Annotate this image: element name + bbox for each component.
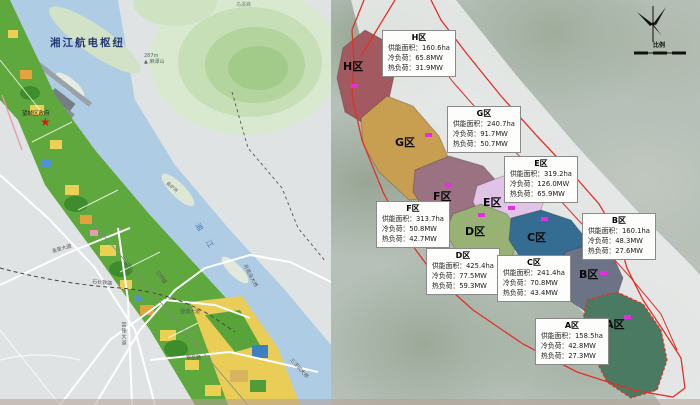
road-label-wangcheng: 望城大道 [180,310,200,316]
dual-map-figure: 湘江航电枢纽 287m ▲ 麻潭山 鸟溪峰 望城区政府 ★ 湘 江 香炉洲 金星… [0,0,700,405]
zone-label-G: G区 [395,134,415,150]
bottom-edge-strip [0,399,700,405]
peak-marker: 287m ▲ 麻潭山 [144,54,164,65]
callout-title: D区 [432,250,494,261]
north-arrow-icon [637,6,666,42]
callout-title: A区 [541,320,603,331]
callout-title: G区 [453,108,515,119]
road-label-yinxing: 银星路 [186,356,201,362]
callout-row-area: 供能面积：313.7ha [382,214,444,224]
district-callout-F: F区 供能面积：313.7ha 冷负荷：50.8MW 热负荷：42.7MW [376,201,450,248]
callout-row-cooling: 冷负荷：48.3MW [588,236,650,246]
callout-row-area: 供能面积：160.6ha [388,43,450,53]
callout-row-cooling: 冷负荷：70.8MW [503,278,565,288]
energy-station-marker-G [425,133,432,137]
callout-row-cooling: 冷负荷：91.7MW [453,129,515,139]
callout-row-area: 供能面积：240.7ha [453,119,515,129]
callout-row-cooling: 冷负荷：126.0MW [510,179,572,189]
callout-row-area: 供能面积：319.2ha [510,169,572,179]
energy-station-marker-F [445,183,452,187]
callout-row-area: 供能面积：158.5ha [541,331,603,341]
callout-row-cooling: 冷负荷：65.8MW [388,53,450,63]
peak-triangle-icon: ▲ [144,59,148,65]
hill-label: 鸟溪峰 [236,3,251,9]
energy-station-marker-D [478,213,485,217]
map-title: 湘江航电枢纽 [50,38,125,50]
callout-row-cooling: 冷负荷：42.8MW [541,341,603,351]
callout-row-heating: 热负荷：27.3MW [541,351,603,361]
callout-title: H区 [388,32,450,43]
zone-label-H: H区 [343,58,363,74]
callout-row-heating: 热负荷：59.3MW [432,281,494,291]
callout-row-area: 供能面积：425.4ha [432,261,494,271]
energy-station-marker-E [508,206,515,210]
callout-row-heating: 热负荷：65.9MW [510,189,572,199]
district-callout-H: H区 供能面积：160.6ha 冷负荷：65.8MW 热负荷：31.9MW [382,30,456,77]
callout-title: F区 [382,203,444,214]
zone-label-D: D区 [465,223,485,239]
callout-title: C区 [503,257,565,268]
district-callout-G: G区 供能面积：240.7ha 冷负荷：91.7MW 热负荷：50.7MW [447,106,521,153]
planning-map-graphics [0,0,331,405]
planning-map: 湘江航电枢纽 287m ▲ 麻潭山 鸟溪峰 望城区政府 ★ 湘 江 香炉洲 金星… [0,0,331,405]
zone-label-C: C区 [527,229,546,245]
callout-row-heating: 热负荷：50.7MW [453,139,515,149]
district-callout-B: B区 供能面积：160.1ha 冷负荷：48.3MW 热负荷：27.6MW [582,213,656,260]
zoning-map: H区 G区 F区 E区 D区 C区 B区 A区 H区 供能面积：160.6ha … [331,0,700,405]
callout-row-heating: 热负荷：43.4MW [503,288,565,298]
zone-label-E: E区 [483,194,502,210]
government-star-icon: ★ [40,116,51,128]
energy-station-marker-C [541,217,548,221]
callout-row-heating: 热负荷：42.7MW [382,234,444,244]
energy-station-marker-H [351,84,358,88]
zone-label-B: B区 [579,266,598,282]
district-callout-C: C区 供能面积：241.4ha 冷负荷：70.8MW 热负荷：43.4MW [497,255,571,302]
scale-bar [634,52,686,55]
callout-row-heating: 热负荷：27.6MW [588,246,650,256]
district-callout-E: E区 供能面积：319.2ha 冷负荷：126.0MW 热负荷：65.9MW [504,156,578,203]
scale-label: 比例 [653,40,665,49]
energy-station-marker-B [600,271,607,275]
callout-row-cooling: 冷负荷：77.5MW [432,271,494,281]
callout-title: E区 [510,158,572,169]
peak-name: 麻潭山 [149,59,164,65]
callout-row-area: 供能面积：241.4ha [503,268,565,278]
callout-row-cooling: 冷负荷：50.8MW [382,224,444,234]
callout-row-heating: 热负荷：31.9MW [388,63,450,73]
callout-row-area: 供能面积：160.1ha [588,226,650,236]
district-callout-A: A区 供能面积：158.5ha 冷负荷：42.8MW 热负荷：27.3MW [535,318,609,365]
district-callout-D: D区 供能面积：425.4ha 冷负荷：77.5MW 热负荷：59.3MW [426,248,500,295]
road-label-leifeng: 雷锋大道 [120,322,126,346]
energy-station-marker-A [624,315,631,319]
callout-title: B区 [588,215,650,226]
